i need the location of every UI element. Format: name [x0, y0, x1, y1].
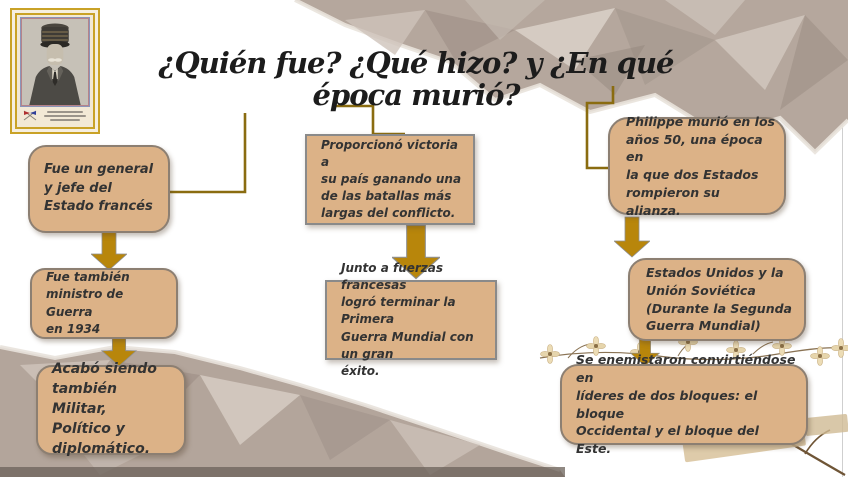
flow-box-middle-2: Junto a fuerzas francesas logró terminar…: [325, 280, 497, 360]
presentation-slide: ¿Quién fue? ¿Qué hizo? y ¿En qué época m…: [0, 0, 848, 477]
flow-box-right-2: Estados Unidos y la Unión Soviética (Dur…: [628, 258, 806, 341]
flow-box-text: Estados Unidos y la Unión Soviética (Dur…: [646, 264, 792, 335]
down-arrow-icon: [91, 230, 127, 270]
flow-box-left-3: Acabó siendo también Militar, Político y…: [36, 365, 186, 455]
portrait-caption: [22, 109, 88, 122]
petain-portrait: [10, 8, 100, 134]
flow-box-right-3: Se enemistaron convirtiéndose en líderes…: [560, 364, 808, 445]
flow-box-text: Acabó siendo también Militar, Político y…: [52, 360, 176, 459]
connector-left: [170, 113, 245, 192]
flow-box-right-1: Philippe murió en los años 50, una época…: [608, 117, 786, 215]
flow-box-left-2: Fue también ministro de Guerra en 1934: [30, 268, 178, 339]
flow-box-left-1: Fue un general y jefe del Estado francés: [28, 145, 170, 233]
caption-lines: [42, 111, 88, 121]
slide-title: ¿Quién fue? ¿Qué hizo? y ¿En qué época m…: [112, 48, 720, 112]
flow-box-text: Se enemistaron convirtiéndose en líderes…: [576, 351, 798, 458]
flow-box-middle-1: Proporcionó victoria a su país ganando u…: [305, 134, 475, 225]
down-arrow-icon: [614, 214, 650, 260]
crossed-flags-icon: [22, 109, 38, 122]
portrait-frame: [15, 13, 95, 129]
flow-box-text: Philippe murió en los años 50, una época…: [626, 113, 776, 220]
flow-box-text: Fue un general y jefe del Estado francés: [44, 161, 153, 216]
flow-box-text: Proporcionó victoria a su país ganando u…: [321, 137, 465, 222]
portrait-photo-icon: [22, 19, 88, 105]
flow-box-text: Junto a fuerzas francesas logró terminar…: [341, 260, 487, 379]
flow-box-text: Fue también ministro de Guerra en 1934: [46, 269, 168, 337]
